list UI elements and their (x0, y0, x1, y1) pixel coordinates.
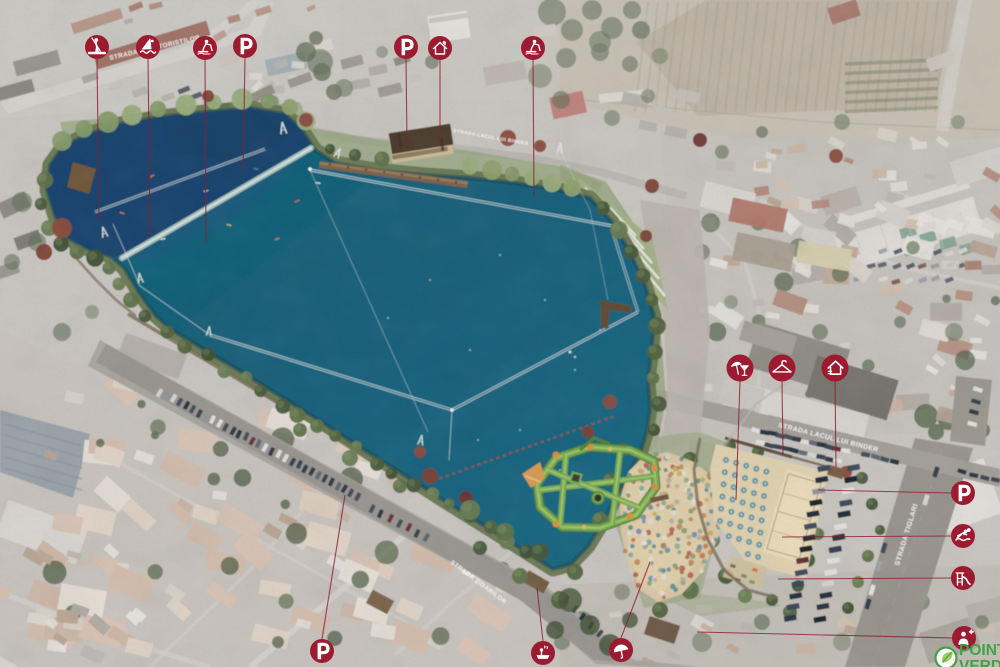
svg-text:POINT: POINT (959, 642, 1000, 659)
svg-text:VERDE: VERDE (959, 658, 1000, 667)
